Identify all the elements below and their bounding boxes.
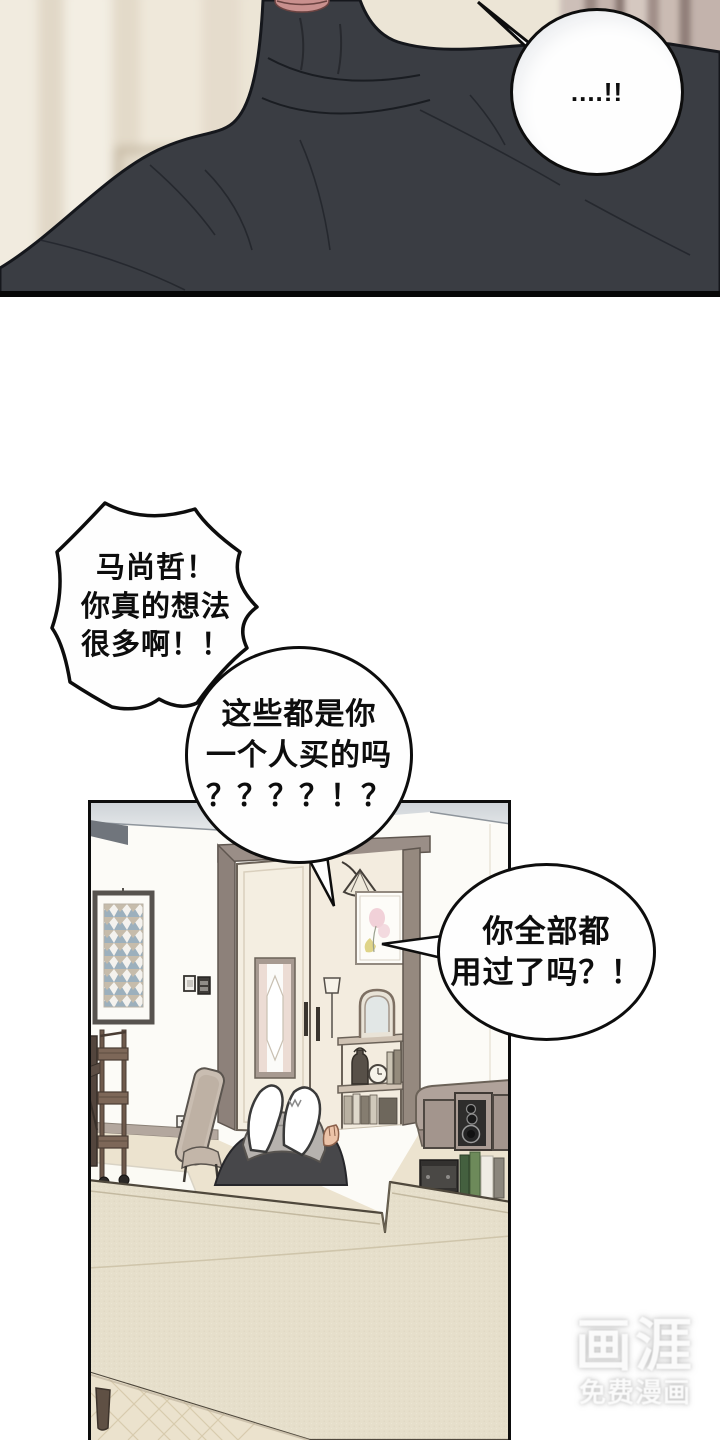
watermark-logo: 画涯 [560, 1314, 710, 1378]
site-watermark: 画涯 免费漫画 [560, 1314, 710, 1408]
followup-bubble-pointer [378, 930, 444, 962]
burst-line-3: 很多啊！！ [50, 626, 262, 665]
speaker-right [455, 1093, 492, 1150]
speaker-left [424, 1100, 456, 1148]
followup-line-2: 用过了吗？！ [451, 952, 643, 993]
speaker-side-table [416, 1080, 511, 1198]
question-line-3: ？？？？！？ [206, 776, 392, 817]
followup-line-1: 你全部都 [483, 911, 611, 952]
question-line-2: 一个人买的吗 [206, 735, 392, 776]
question-line-1: 这些都是你 [222, 694, 377, 735]
shock-bubble-text: ....!! [571, 77, 623, 108]
door-right-jamb [403, 848, 420, 1125]
followup-speech-bubble: 你全部都 用过了吗？！ [437, 863, 656, 1041]
comic-page: ....!! 马尚哲！ 你真的想法 很多啊！！ [0, 0, 720, 1440]
geometric-wall-art [95, 888, 152, 1022]
burst-line-2: 你真的想法 [50, 588, 262, 627]
panel-bottom-border [0, 291, 720, 297]
door-handle [304, 1002, 308, 1036]
sofa-leg [96, 1388, 110, 1430]
question-speech-bubble: 这些都是你 一个人买的吗 ？？？？！？ [185, 646, 413, 864]
door-handle-2 [316, 1007, 320, 1041]
lantern-bottle [352, 1050, 368, 1084]
burst-line-1: 马尚哲！ [50, 549, 262, 588]
books-under-table [460, 1152, 504, 1198]
burst-bubble-text: 马尚哲！ 你真的想法 很多啊！！ [50, 549, 262, 665]
shock-speech-bubble: ....!! [510, 8, 684, 176]
watermark-tagline: 免费漫画 [560, 1378, 710, 1408]
